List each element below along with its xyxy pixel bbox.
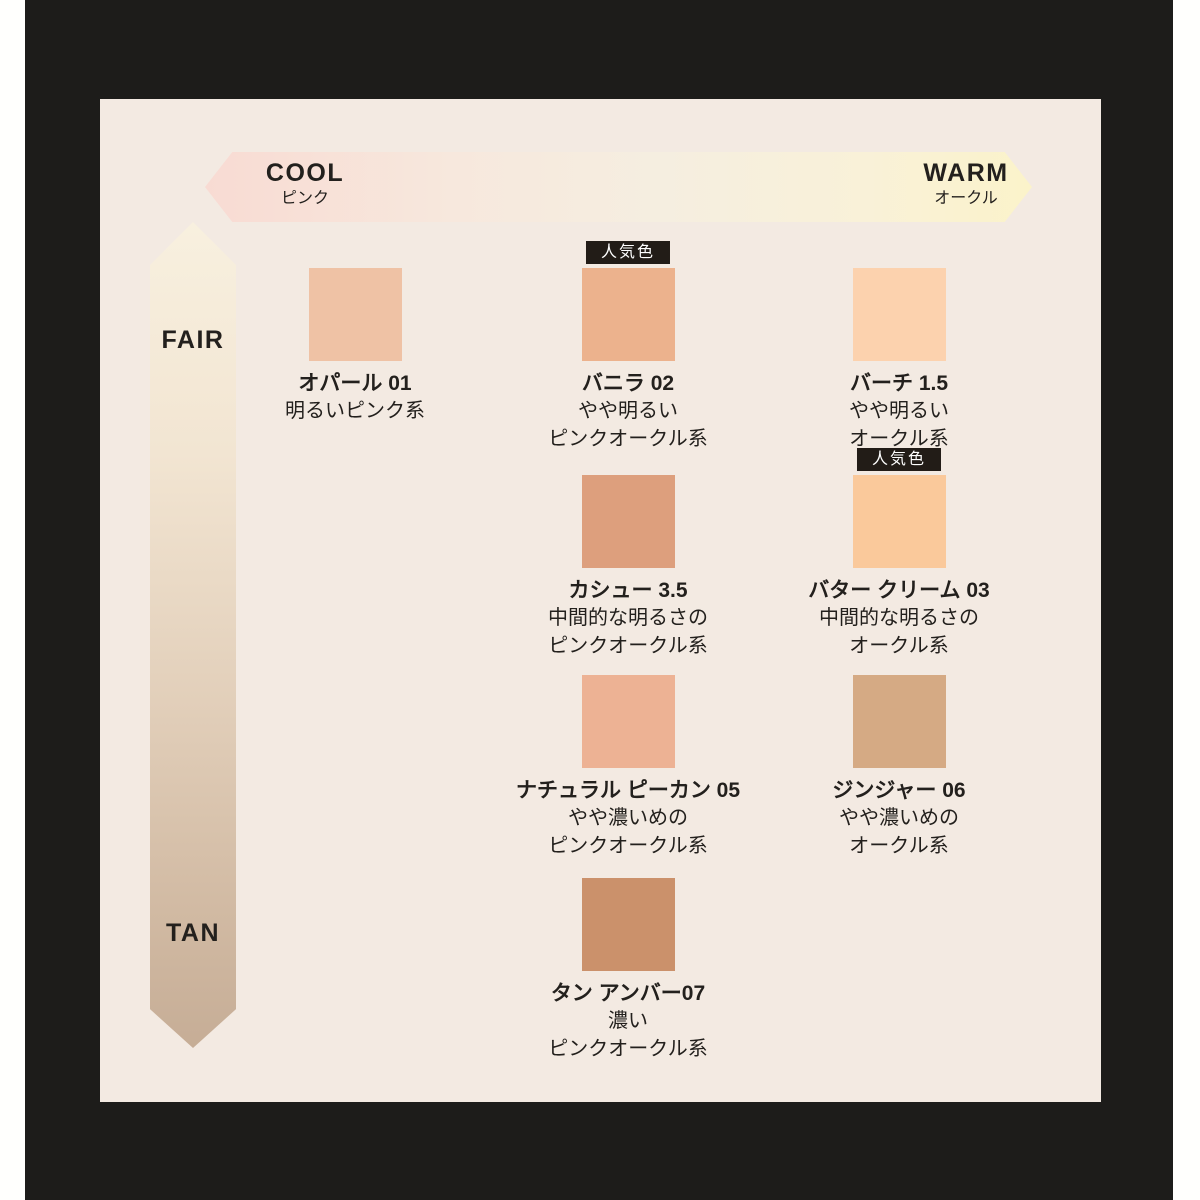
shade-swatch-cashew-3-5: [582, 475, 675, 568]
shade-desc-line1: 明るいピンク系: [285, 397, 425, 425]
popular-color-badge: 人気色: [586, 241, 670, 264]
shade-swatch-ginger-06: [853, 675, 946, 768]
cool-label-text: COOL: [235, 160, 375, 186]
fair-axis-label: FAIR: [143, 326, 243, 355]
shade-name: タン アンバー07: [551, 981, 705, 1007]
shade-swatch-butter-cream-03: [853, 475, 946, 568]
shade-cell-cashew-3-5: カシュー 3.5 中間的な明るさの ピンクオークル系: [508, 448, 748, 660]
shade-desc-line1: やや濃いめの: [568, 804, 688, 832]
shade-chart-panel: COOL ピンク WARM オークル FAIR TAN オパール 01 明るいピ…: [100, 99, 1101, 1102]
shade-swatch-tan-amber-07: [582, 878, 675, 971]
shade-desc-line1: 濃い: [608, 1007, 648, 1035]
shade-desc-line2: オークル系: [849, 832, 948, 860]
popular-color-badge: 人気色: [857, 448, 941, 471]
shade-swatch-birch-1-5: [853, 268, 946, 361]
shade-name: バター クリーム 03: [808, 578, 989, 604]
shade-desc-line1: やや濃いめの: [839, 804, 959, 832]
shade-swatch-natural-pecan-05: [582, 675, 675, 768]
shade-cell-tan-amber-07: タン アンバー07 濃い ピンクオークル系: [508, 851, 748, 1063]
shade-desc-line1: やや明るい: [578, 397, 678, 425]
cool-sublabel-text: ピンク: [235, 190, 375, 208]
shade-desc-line1: 中間的な明るさの: [548, 604, 708, 632]
shade-name: ナチュラル ピーカン 05: [516, 778, 740, 804]
shade-name: オパール 01: [298, 371, 411, 397]
warm-sublabel-text: オークル: [896, 190, 1036, 208]
shade-cell-natural-pecan-05: ナチュラル ピーカン 05 やや濃いめの ピンクオークル系: [508, 648, 748, 860]
shade-name: ジンジャー 06: [832, 778, 965, 804]
warm-label-text: WARM: [896, 160, 1036, 186]
shade-swatch-opal-01: [309, 268, 402, 361]
shade-cell-birch-1-5: バーチ 1.5 やや明るい オークル系: [779, 241, 1019, 453]
shade-desc-line1: 中間的な明るさの: [819, 604, 979, 632]
shade-chart-page: COOL ピンク WARM オークル FAIR TAN オパール 01 明るいピ…: [0, 0, 1200, 1200]
shade-name: カシュー 3.5: [568, 578, 687, 604]
shade-cell-opal-01: オパール 01 明るいピンク系: [235, 241, 475, 425]
cool-axis-label: COOL ピンク: [235, 160, 375, 208]
shade-name: バーチ 1.5: [850, 371, 948, 397]
warm-axis-label: WARM オークル: [896, 160, 1036, 208]
shade-swatch-vanilla-02: [582, 268, 675, 361]
tan-axis-label: TAN: [143, 919, 243, 948]
shade-cell-butter-cream-03: 人気色 バター クリーム 03 中間的な明るさの オークル系: [779, 448, 1019, 660]
shade-name: バニラ 02: [582, 371, 674, 397]
shade-desc-line1: やや明るい: [849, 397, 949, 425]
shade-cell-ginger-06: ジンジャー 06 やや濃いめの オークル系: [779, 648, 1019, 860]
shade-desc-line2: ピンクオークル系: [548, 1035, 707, 1063]
shade-cell-vanilla-02: 人気色 バニラ 02 やや明るい ピンクオークル系: [508, 241, 748, 453]
